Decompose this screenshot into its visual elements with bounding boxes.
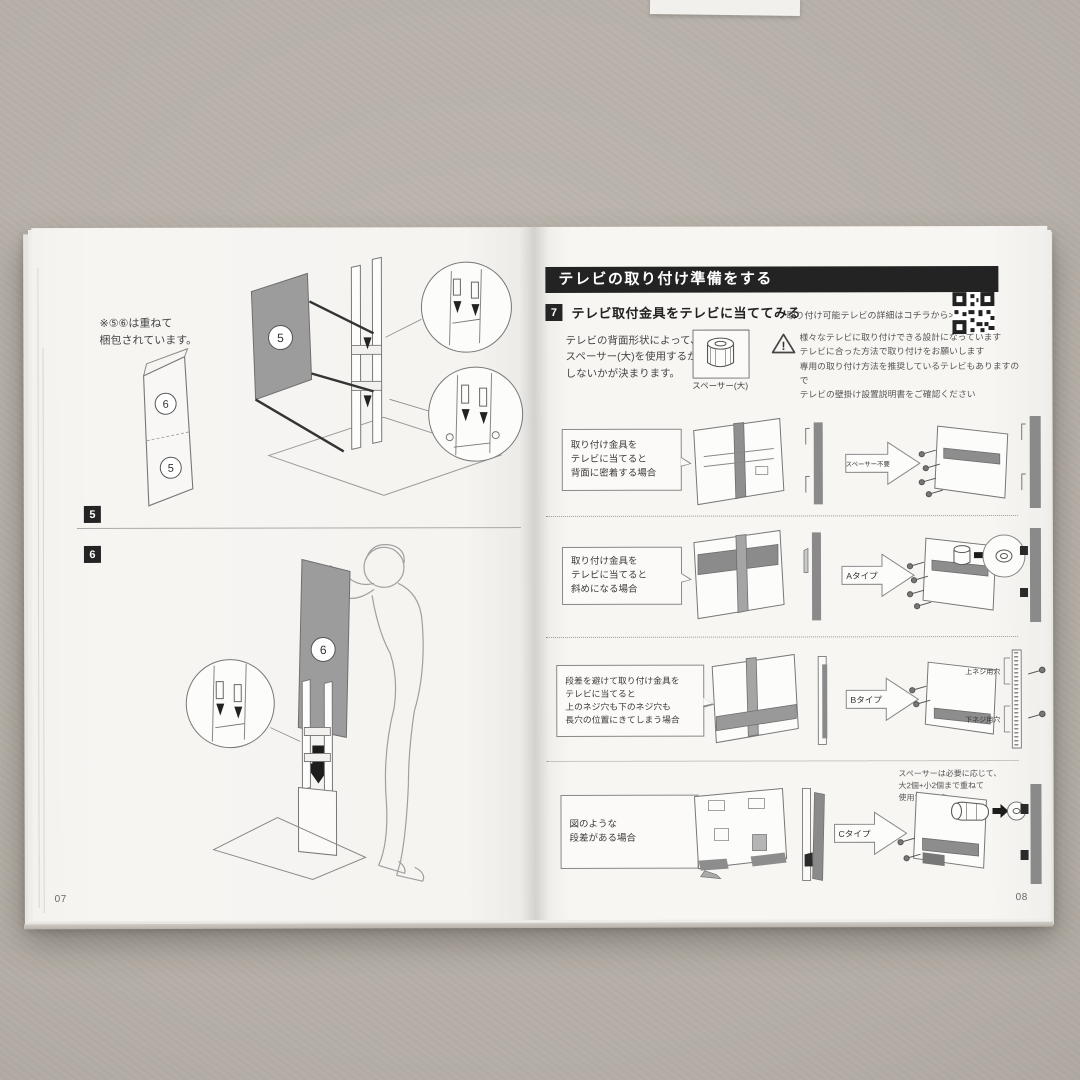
step-5-badge: 5 [84, 506, 101, 523]
section-header: テレビの取り付け準備をする [545, 266, 998, 293]
paper-scrap [650, 0, 800, 16]
panel-label-6: 6 [320, 643, 327, 657]
spacer-part-box [692, 330, 749, 379]
page-number-left: 07 [55, 894, 67, 905]
case-row-flush: 取り付け金具を テレビに当てると 背面に密着する場合 スペーサー不要 [546, 414, 1036, 513]
packaging-diagram: 6 5 [122, 344, 232, 509]
lower-hole-label: 下ネジ用穴 [965, 715, 1000, 724]
manual-page-07: ※⑤⑥は重ねて 梱包されています。 6 5 5 [31, 227, 535, 921]
step-7-heading: 7 テレビ取付金具をテレビに当ててみる [545, 302, 801, 322]
row-separator [546, 636, 1018, 638]
packaging-label-6: 6 [163, 399, 169, 411]
warning-text: 様々なテレビに取り付けできる設計になっています テレビに合った方法で取り付けをお… [799, 330, 1024, 402]
case-caption-box: 取り付け金具を テレビに当てると 斜めになる場合 [562, 547, 682, 605]
case-row-a-type: 取り付け金具を テレビに当てると 斜めになる場合 Aタイプ [546, 522, 1036, 631]
spacer-large-icon [693, 331, 746, 376]
case-caption: 取り付け金具を テレビに当てると 背面に密着する場合 [571, 438, 657, 481]
case-diagram-b-type: Bタイプ 上ネジ用穴 下ネジ用穴 [706, 644, 1046, 757]
case-result-label: スペーサー不要 [846, 460, 891, 468]
step-6-badge: 6 [84, 546, 101, 563]
step-7-title: テレビ取付金具をテレビに当ててみる [571, 302, 801, 321]
row-separator [546, 515, 1018, 517]
qr-caption: 取り付け可能テレビの詳細はコチラから> [786, 308, 953, 321]
case-result-label: Cタイプ [839, 829, 871, 839]
spacer-label: スペーサー(大) [678, 380, 763, 392]
case-result-label: Aタイプ [846, 571, 878, 581]
page-stack-edge [43, 348, 45, 913]
case-caption-box: 取り付け金具を テレビに当てると 背面に密着する場合 [562, 429, 682, 491]
case-diagram-c-type: Cタイプ [686, 782, 1046, 895]
svg-text:!: ! [782, 339, 786, 353]
step6-diagram: 6 [160, 531, 506, 894]
open-manual-booklet: ※⑤⑥は重ねて 梱包されています。 6 5 5 [31, 226, 1048, 921]
upper-hole-label: 上ネジ用穴 [965, 667, 1000, 676]
panel-label-5: 5 [277, 331, 284, 345]
step5-diagram: 5 [223, 249, 536, 500]
warning-triangle-icon: ! [771, 332, 795, 354]
step-divider-line [77, 527, 521, 529]
case-caption-box: 図のような 段差がある場合 [560, 795, 698, 869]
case-row-c-type: スペーサーは必要に応じて、 大2個+小2個まで重ねて 使用できます。 図のような… [546, 768, 1036, 897]
booklet-spine-gutter [519, 227, 550, 920]
case-row-b-type: 段差を避けて取り付け金具を テレビに当てると 上のネジ穴も下のネジ穴も 長穴の位… [546, 644, 1036, 757]
packaging-label-5: 5 [168, 463, 174, 475]
case-diagram-flush: スペーサー不要 [686, 414, 1046, 513]
case-caption: 段差を避けて取り付け金具を テレビに当てると 上のネジ穴も下のネジ穴も 長穴の位… [565, 674, 679, 727]
photo-of-manual: ※⑤⑥は重ねて 梱包されています。 6 5 5 [0, 0, 1080, 1080]
intro-text: テレビの背面形状によって、 スペーサー(大)を使用するか しないかが決まります。 [565, 333, 700, 382]
page-number-right: 08 [1016, 892, 1028, 903]
case-caption: 取り付け金具を テレビに当てると 斜めになる場合 [571, 554, 647, 597]
case-caption: 図のような 段差がある場合 [570, 818, 637, 847]
row-separator [546, 760, 1018, 762]
qr-code-icon [952, 292, 994, 334]
case-diagram-a-type: Aタイプ [686, 522, 1046, 631]
case-caption-box: 段差を避けて取り付け金具を テレビに当てると 上のネジ穴も下のネジ穴も 長穴の位… [556, 665, 704, 737]
manual-page-08: テレビの取り付け準備をする 7 テレビ取付金具をテレビに当ててみる 取り付け可能… [534, 226, 1048, 920]
page-stack-edge [37, 268, 39, 908]
case-result-label: Bタイプ [850, 695, 882, 705]
